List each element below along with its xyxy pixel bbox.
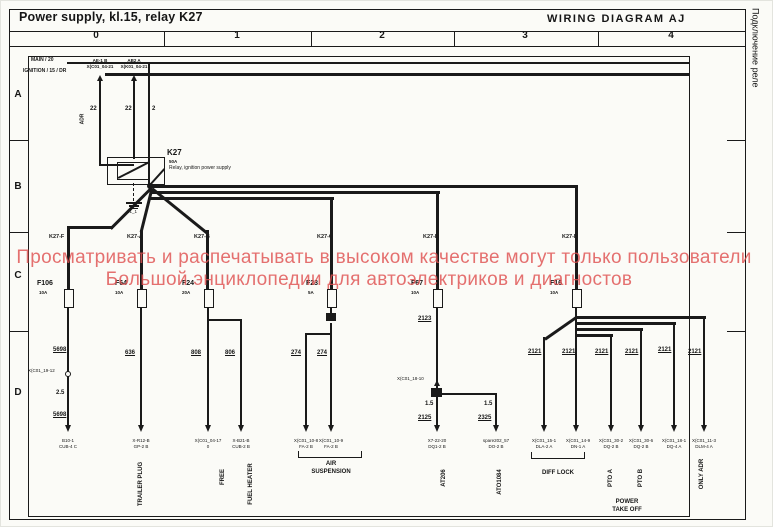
arrow-down bbox=[671, 425, 677, 432]
splice bbox=[431, 388, 442, 397]
watermark-line-2: Большой энциклопедии для автоэлектриков … bbox=[106, 270, 633, 290]
fuse-F64 bbox=[137, 289, 147, 308]
watermark-line-1: Просматривать и распечатывать в высоком … bbox=[16, 248, 751, 268]
side-note-vertical: Подключение реле bbox=[750, 8, 759, 88]
diagram-sheet: Power supply, kl.15, relay K27 WIRING DI… bbox=[1, 1, 772, 526]
relay-coil bbox=[117, 162, 149, 180]
arrow-down bbox=[434, 425, 440, 432]
group-bracket bbox=[531, 452, 585, 459]
arrow-up bbox=[434, 380, 440, 386]
fuse-F106 bbox=[64, 289, 74, 308]
arrow-down bbox=[65, 425, 71, 432]
splice bbox=[326, 313, 336, 321]
fuse-F23 bbox=[327, 289, 337, 308]
arrow-down bbox=[138, 425, 144, 432]
arrow-down bbox=[238, 425, 244, 432]
group-bracket bbox=[298, 451, 362, 458]
arrow-down bbox=[608, 425, 614, 432]
fuse-F24 bbox=[204, 289, 214, 308]
arrow-down bbox=[328, 425, 334, 432]
arrow-down bbox=[303, 425, 309, 432]
arrow-down bbox=[701, 425, 707, 432]
junction bbox=[147, 183, 153, 189]
scanned-wiring-diagram-page: Power supply, kl.15, relay K27 WIRING DI… bbox=[0, 0, 773, 527]
arrow-down bbox=[573, 425, 579, 432]
arrow-up bbox=[131, 75, 137, 81]
arrow-down bbox=[638, 425, 644, 432]
fuse-F67 bbox=[433, 289, 443, 308]
fuse-F16 bbox=[572, 289, 582, 308]
arrow-down bbox=[493, 425, 499, 432]
arrow-down bbox=[205, 425, 211, 432]
relay-ground-lead bbox=[133, 183, 135, 201]
arrow-up bbox=[97, 75, 103, 81]
arrow-down bbox=[541, 425, 547, 432]
inline-connector bbox=[65, 371, 71, 377]
